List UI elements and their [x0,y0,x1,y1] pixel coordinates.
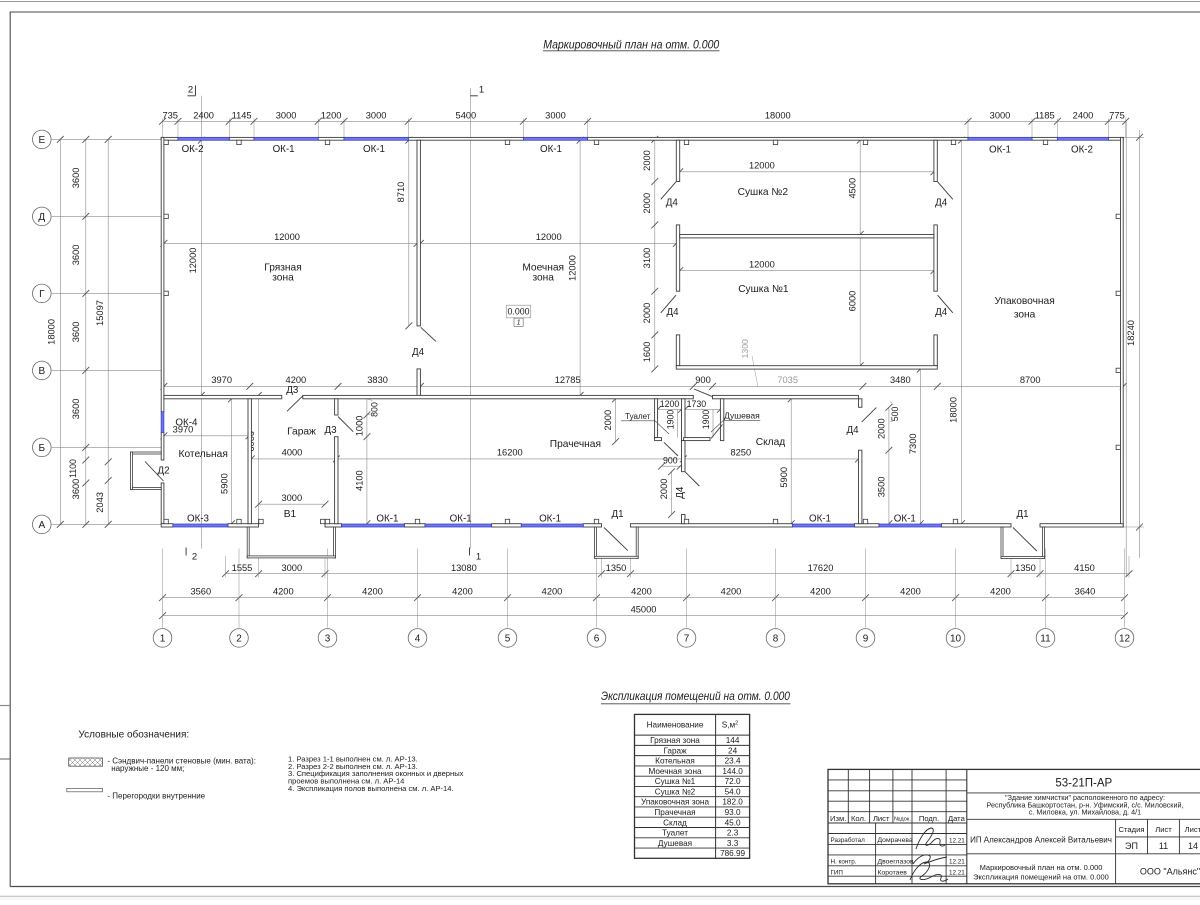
svg-text:4200: 4200 [900,587,921,597]
svg-text:Д1: Д1 [611,509,623,520]
svg-text:Д4: Д4 [935,197,948,208]
svg-text:182.0: 182.0 [722,798,743,807]
svg-text:наружные - 120 мм;: наружные - 120 мм; [111,764,184,773]
svg-text:3480: 3480 [890,375,911,385]
svg-text:Прачечная: Прачечная [654,808,695,817]
svg-text:Д3: Д3 [286,385,299,396]
svg-text:Лист: Лист [1155,825,1172,834]
svg-text:Д3: Д3 [325,425,338,436]
svg-text:Домрачева: Домрачева [878,837,913,844]
svg-text:900: 900 [663,455,678,465]
svg-text:72.0: 72.0 [725,777,741,786]
svg-text:Упаковочная зона: Упаковочная зона [641,798,709,807]
svg-text:Д2: Д2 [157,466,169,477]
svg-text:Моечная зона: Моечная зона [648,767,702,776]
svg-text:Разработал: Разработал [831,836,866,844]
svg-text:Изм.: Изм. [830,814,846,823]
svg-text:Д4: Д4 [675,486,686,499]
svg-text:Двоеглазов: Двоеглазов [878,858,915,865]
svg-text:ОК-1: ОК-1 [809,513,831,524]
svg-text:Грязная зона: Грязная зона [650,736,700,745]
svg-text:Г: Г [39,289,45,300]
svg-text:3000: 3000 [545,111,566,121]
svg-text:1730: 1730 [687,399,707,409]
svg-text:18000: 18000 [949,397,959,423]
svg-text:Гараж: Гараж [663,746,687,755]
svg-text:Лист: Лист [873,814,890,823]
svg-text:2000: 2000 [642,303,652,324]
svg-text:ОК-1: ОК-1 [894,513,916,524]
svg-text:Н. контр.: Н. контр. [831,858,857,865]
svg-text:1: 1 [160,633,166,644]
svg-text:12: 12 [1119,633,1131,644]
svg-text:Е: Е [38,135,45,146]
svg-text:2000: 2000 [876,418,886,439]
svg-text:144.0: 144.0 [722,767,743,776]
svg-text:ИП Александров Алексей Виталье: ИП Александров Алексей Витальевич [970,836,1112,845]
svg-text:ОК-4: ОК-4 [175,417,198,428]
svg-text:4: 4 [415,633,421,644]
svg-text:8700: 8700 [1020,375,1041,385]
svg-text:- Перегородки внутренние: - Перегородки внутренние [107,792,205,801]
svg-text:15097: 15097 [95,300,105,326]
svg-text:144: 144 [726,736,740,745]
svg-text:24: 24 [728,746,738,755]
svg-text:4200: 4200 [286,375,307,385]
svg-text:16200: 16200 [497,448,523,458]
svg-text:Условные обозначения:: Условные обозначения: [78,729,189,741]
svg-text:зона: зона [1014,310,1036,321]
svg-text:Стадия: Стадия [1119,825,1145,834]
svg-text:1900: 1900 [701,410,711,430]
svg-text:3600: 3600 [71,399,81,420]
svg-text:3000: 3000 [281,493,302,503]
svg-text:Туалет: Туалет [625,412,651,421]
svg-text:3560: 3560 [190,587,211,597]
svg-text:53-21П-АР: 53-21П-АР [1055,777,1112,789]
svg-text:500: 500 [890,406,900,421]
svg-text:Сушка №1: Сушка №1 [738,284,789,295]
svg-text:1100: 1100 [68,459,78,478]
svg-text:3970: 3970 [211,375,232,385]
svg-text:4. Экспликация полов выполнена: 4. Экспликация полов выполнена см. л. АР… [288,784,454,793]
svg-text:1185: 1185 [1035,111,1055,121]
svg-text:12000: 12000 [749,161,775,171]
svg-text:7: 7 [684,633,690,644]
svg-text:Прачечная: Прачечная [550,439,601,450]
svg-text:Д4: Д4 [847,425,860,436]
svg-text:0.000: 0.000 [507,306,529,316]
svg-text:Листов: Листов [1185,825,1200,834]
svg-text:775: 775 [1109,111,1125,121]
svg-text:12.21: 12.21 [949,837,965,844]
svg-text:Подп.: Подп. [919,814,939,823]
svg-text:4200: 4200 [542,587,563,597]
svg-text:ОК-1: ОК-1 [989,145,1011,156]
svg-text:4200: 4200 [810,587,831,597]
svg-text:Маркировочный план на отм. 0.0: Маркировочный план на отм. 0.000 [980,863,1103,872]
svg-text:ОК-3: ОК-3 [187,514,210,525]
svg-text:2000: 2000 [659,479,669,500]
svg-text:13080: 13080 [451,563,477,573]
svg-text:12000: 12000 [536,232,562,242]
svg-text:ОК-1: ОК-1 [273,144,295,155]
svg-text:Экспликация помещений на отм.: Экспликация помещений на отм. 0.000 [973,872,1109,881]
svg-text:5400: 5400 [456,111,477,121]
svg-text:1200: 1200 [321,111,342,121]
svg-text:2000: 2000 [642,150,652,171]
svg-text:Котельная: Котельная [179,449,228,460]
svg-text:Котельная: Котельная [655,757,695,766]
svg-text:3100: 3100 [642,248,652,269]
svg-text:ОК-1: ОК-1 [450,513,472,524]
svg-text:4200: 4200 [452,587,473,597]
svg-text:3000: 3000 [281,563,302,573]
svg-text:4200: 4200 [721,587,742,597]
svg-text:12000: 12000 [749,260,775,270]
svg-text:Склад: Склад [756,437,786,448]
svg-text:3600: 3600 [71,479,81,500]
svg-text:1555: 1555 [232,563,253,573]
svg-text:ОК-1: ОК-1 [363,144,385,155]
svg-text:1145: 1145 [232,111,252,121]
svg-text:2400: 2400 [193,111,214,121]
svg-text:Душевая: Душевая [724,411,760,421]
svg-text:1350: 1350 [606,563,627,573]
svg-text:735: 735 [162,111,178,121]
svg-text:2: 2 [192,552,197,563]
svg-text:3500: 3500 [877,477,887,498]
svg-text:18240: 18240 [1126,320,1136,346]
svg-text:ОК-2: ОК-2 [1071,145,1093,156]
svg-text:Д4: Д4 [666,197,679,208]
svg-text:9: 9 [863,633,869,644]
svg-text:8250: 8250 [730,448,751,458]
svg-text:В: В [38,366,45,377]
svg-text:Дата: Дата [948,814,966,823]
svg-text:8: 8 [773,633,779,644]
svg-text:ГИП: ГИП [831,869,844,876]
svg-text:14: 14 [1188,841,1198,851]
svg-text:Коротаев: Коротаев [878,869,908,876]
svg-text:54.0: 54.0 [725,787,741,796]
svg-text:1900: 1900 [665,410,675,430]
svg-text:Д1: Д1 [1017,509,1029,520]
svg-text:7035: 7035 [777,375,798,385]
svg-text:6000: 6000 [847,291,857,312]
svg-text:3000: 3000 [276,111,297,121]
svg-text:В1: В1 [284,509,297,520]
svg-text:4500: 4500 [847,178,857,199]
svg-text:1200: 1200 [660,399,680,409]
svg-text:ЭП: ЭП [1125,841,1138,851]
svg-text:2.3: 2.3 [727,829,739,838]
svg-text:45.0: 45.0 [725,818,741,827]
svg-text:900: 900 [695,375,711,385]
svg-text:12785: 12785 [555,375,581,385]
svg-text:1600: 1600 [642,342,652,363]
svg-text:с. Миловка, ул. Михайлова, д.: с. Миловка, ул. Михайлова, д. 4/1 [1029,808,1141,817]
svg-text:Д4: Д4 [935,307,948,318]
svg-text:3: 3 [325,633,331,644]
svg-text:5900: 5900 [779,467,789,488]
svg-text:12000: 12000 [188,248,198,274]
svg-text:ООО "Альянс": ООО "Альянс" [1140,867,1200,877]
svg-text:5900: 5900 [219,473,229,494]
svg-text:А: А [38,520,45,531]
svg-text:3600: 3600 [71,168,81,189]
svg-text:12.21: 12.21 [949,859,965,866]
svg-text:Упаковочная: Упаковочная [994,296,1054,307]
svg-text:Б: Б [39,443,46,454]
svg-text:4200: 4200 [362,587,383,597]
svg-text:ОК-1: ОК-1 [376,513,398,524]
svg-text:6: 6 [594,633,600,644]
svg-text:1: 1 [476,552,481,563]
svg-text:93.0: 93.0 [725,808,741,817]
svg-text:Кол.: Кол. [851,814,866,823]
svg-text:Д4: Д4 [412,347,425,358]
svg-text:4100: 4100 [354,470,364,491]
svg-text:2000: 2000 [642,193,652,214]
svg-text:зона: зона [272,272,294,283]
svg-text:зона: зона [532,272,554,283]
svg-text:1: 1 [479,85,484,96]
svg-text:11: 11 [1040,633,1051,644]
svg-text:Д: Д [38,212,45,223]
svg-text:2: 2 [236,633,242,644]
svg-text:45000: 45000 [631,605,657,615]
svg-text:2043: 2043 [95,492,105,513]
svg-text:1300: 1300 [740,339,750,358]
svg-text:12000: 12000 [274,232,300,242]
svg-text:2400: 2400 [1073,111,1094,121]
svg-text:2000: 2000 [603,410,613,431]
svg-text:10: 10 [950,633,962,644]
svg-text:12.21: 12.21 [949,870,965,877]
svg-text:5: 5 [505,633,511,644]
svg-text:Д4: Д4 [666,307,679,318]
svg-text:1: 1 [517,320,521,327]
svg-text:Душевая: Душевая [658,839,692,848]
svg-text:Сушка №2: Сушка №2 [655,787,696,796]
svg-text:23.4: 23.4 [725,757,741,766]
svg-text:12000: 12000 [568,255,578,281]
svg-text:18000: 18000 [765,111,791,121]
svg-text:3600: 3600 [71,245,81,266]
svg-text:Сушка №2: Сушка №2 [738,187,789,198]
svg-text:4200: 4200 [631,587,652,597]
svg-text:Наименование: Наименование [647,721,704,730]
svg-text:2: 2 [188,85,193,96]
svg-text:Склад: Склад [663,818,687,827]
svg-text:1350: 1350 [1015,563,1036,573]
svg-text:Экспликация помещений на отм.: Экспликация помещений на отм. 0.000 [601,691,791,703]
svg-text:4200: 4200 [273,587,294,597]
svg-text:№док.: №док. [894,816,911,822]
svg-text:Маркировочный план на отм. 0.0: Маркировочный план на отм. 0.000 [543,37,719,51]
svg-text:3000: 3000 [990,111,1011,121]
svg-text:3640: 3640 [1075,587,1096,597]
svg-text:8710: 8710 [396,182,406,203]
svg-text:Сушка №1: Сушка №1 [655,777,696,786]
svg-text:4000: 4000 [282,448,303,458]
svg-text:4150: 4150 [1074,563,1095,573]
svg-text:ОК-1: ОК-1 [539,513,561,524]
svg-text:7300: 7300 [908,433,918,454]
svg-text:786.99: 786.99 [720,849,745,858]
svg-text:3.3: 3.3 [727,839,739,848]
svg-text:4200: 4200 [990,587,1011,597]
svg-text:18000: 18000 [47,319,57,345]
svg-text:3600: 3600 [71,322,81,343]
svg-text:ОК-1: ОК-1 [540,144,562,155]
svg-text:3000: 3000 [366,111,387,121]
svg-text:ОК-2: ОК-2 [182,144,204,155]
svg-text:Туалет: Туалет [662,829,688,838]
svg-text:1000: 1000 [354,416,364,437]
svg-text:3830: 3830 [367,375,388,385]
svg-text:17620: 17620 [808,563,834,573]
svg-text:11: 11 [1159,841,1168,851]
svg-text:Гараж: Гараж [287,427,316,438]
